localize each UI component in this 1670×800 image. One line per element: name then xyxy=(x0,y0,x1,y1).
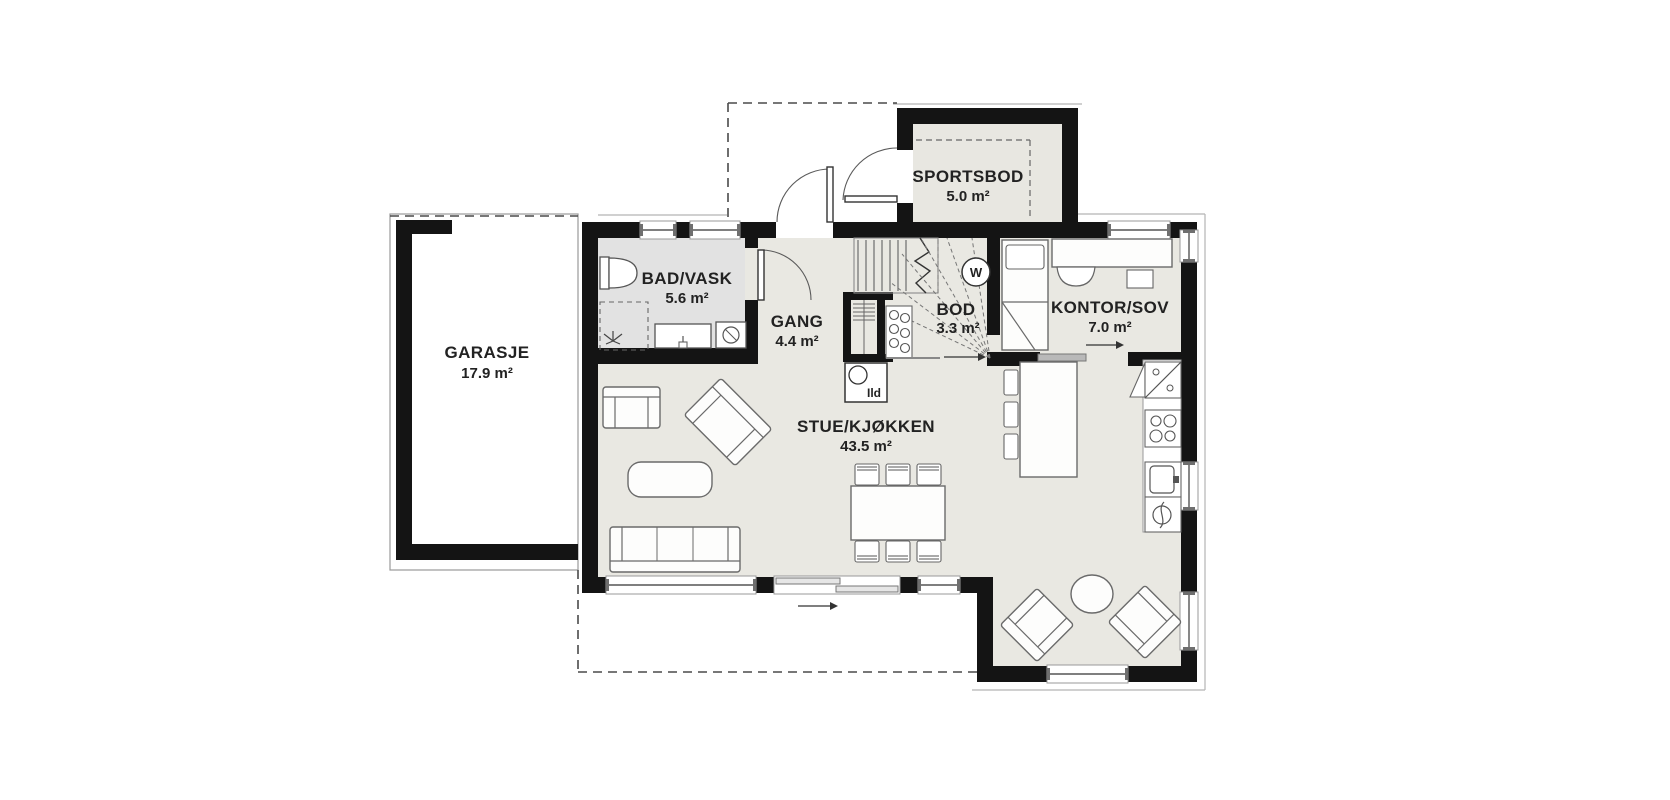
garage-outline xyxy=(390,214,578,570)
garage-label: GARASJE xyxy=(445,343,530,362)
washing-machine-icon xyxy=(716,322,746,348)
east-window-top xyxy=(1180,230,1198,262)
living-area: 43.5 m² xyxy=(840,438,892,455)
coffee-table-icon xyxy=(628,462,712,497)
garage-area: 17.9 m² xyxy=(461,365,513,382)
sofa-icon xyxy=(610,527,740,572)
dining-table-icon xyxy=(851,486,945,540)
armchair-icon xyxy=(603,387,660,428)
dining-chair-icon xyxy=(855,464,941,485)
floor-plan-drawing: W xyxy=(0,0,1670,800)
nook-south-window xyxy=(1047,665,1128,683)
round-table-icon xyxy=(1071,575,1113,613)
garage xyxy=(390,214,578,570)
sportsbod-area: 5.0 m² xyxy=(946,188,989,205)
dishwasher-icon xyxy=(1145,497,1181,532)
bath-sink-icon xyxy=(655,324,711,348)
sportsbod-label: SPORTSBOD xyxy=(912,167,1023,186)
floor-plan-canvas: W xyxy=(0,0,1670,800)
dining-set xyxy=(851,464,945,562)
east-window-kitchen xyxy=(1180,462,1198,510)
bod-area: 3.3 m² xyxy=(936,320,979,337)
wardrobe-shelf-icon xyxy=(851,300,877,354)
south-window-small xyxy=(918,576,960,594)
bathroom-window xyxy=(640,221,676,239)
bathroom-area: 5.6 m² xyxy=(665,290,708,307)
office-label: KONTOR/SOV xyxy=(1051,298,1169,317)
water-heater: W xyxy=(962,258,990,286)
bathroom-label: BAD/VASK xyxy=(642,269,733,288)
bed-icon xyxy=(1002,240,1048,350)
fireplace-label: Ild xyxy=(867,386,881,400)
kitchen-island-icon xyxy=(1020,362,1077,477)
fridge-icon xyxy=(1145,362,1181,398)
water-heater-label: W xyxy=(970,265,983,280)
bar-stool-icon xyxy=(1004,370,1018,459)
kontor-window xyxy=(1108,221,1170,239)
east-window-nook xyxy=(1180,592,1198,650)
dining-chair-icon xyxy=(855,541,941,562)
gang-window xyxy=(690,221,740,239)
cooktop-icon xyxy=(1145,410,1181,447)
bod-label: BOD xyxy=(937,300,976,319)
south-sliding-door xyxy=(774,576,900,594)
wood-stove-icon: Ild xyxy=(845,363,887,402)
south-window-long xyxy=(606,576,756,594)
hall-area: 4.4 m² xyxy=(775,333,818,350)
hall-label: GANG xyxy=(771,312,824,331)
office-area: 7.0 m² xyxy=(1088,319,1131,336)
kitchen-sink-icon xyxy=(1145,462,1181,497)
living-label: STUE/KJØKKEN xyxy=(797,417,935,436)
